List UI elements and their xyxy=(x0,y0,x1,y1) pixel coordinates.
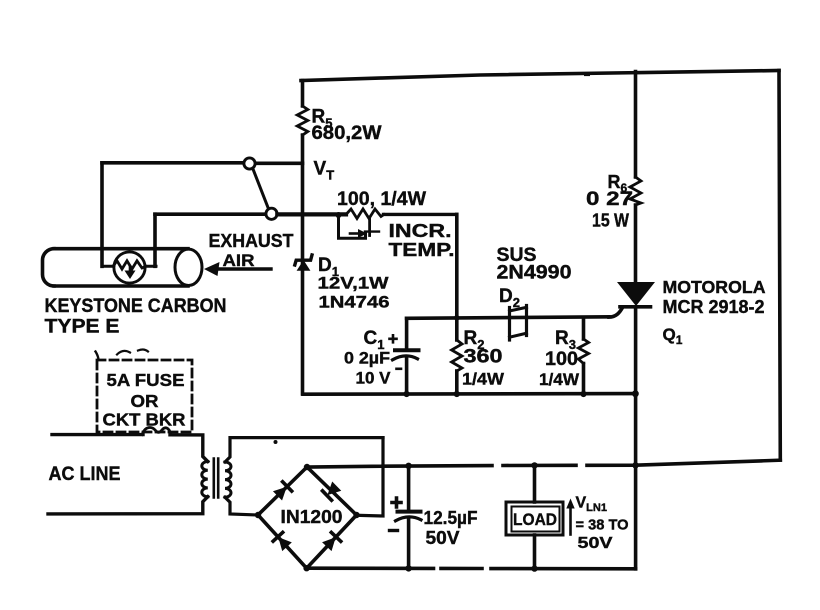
svg-text:10 V: 10 V xyxy=(356,369,392,388)
svg-text:360: 360 xyxy=(464,347,503,368)
svg-text:12.5µF: 12.5µF xyxy=(424,508,478,528)
svg-text:12V,1W: 12V,1W xyxy=(318,274,390,293)
svg-text:MCR 2918-2: MCR 2918-2 xyxy=(663,297,765,317)
svg-text:INCR.: INCR. xyxy=(389,221,452,241)
svg-text:1/4W: 1/4W xyxy=(462,370,505,389)
svg-text:D2: D2 xyxy=(499,286,520,310)
svg-text:CKT BKR: CKT BKR xyxy=(103,410,186,430)
svg-text:100, 1/4W: 100, 1/4W xyxy=(337,188,427,210)
svg-text:15 W: 15 W xyxy=(592,211,629,231)
svg-text:1N4746: 1N4746 xyxy=(319,293,390,312)
svg-text:VT: VT xyxy=(314,159,335,183)
svg-text:AIR: AIR xyxy=(223,251,255,270)
svg-text:680,2W: 680,2W xyxy=(312,122,383,144)
svg-text:Q1: Q1 xyxy=(663,325,683,347)
svg-text:VLN1: VLN1 xyxy=(576,495,607,515)
svg-text:AC LINE: AC LINE xyxy=(49,464,121,485)
svg-text:50V: 50V xyxy=(426,528,460,548)
svg-text:= 38 TO: = 38 TO xyxy=(576,517,629,534)
svg-text:MOTOROLA: MOTOROLA xyxy=(663,277,766,297)
svg-text:0 27: 0 27 xyxy=(586,189,633,210)
svg-text:TYPE E: TYPE E xyxy=(45,316,120,338)
svg-text:EXHAUST: EXHAUST xyxy=(209,230,295,251)
svg-text:100: 100 xyxy=(545,349,578,370)
svg-text:0 2µF: 0 2µF xyxy=(344,349,390,368)
svg-text:TEMP.: TEMP. xyxy=(389,240,455,260)
svg-text:LOAD: LOAD xyxy=(513,510,557,529)
svg-text:OR: OR xyxy=(131,391,159,411)
svg-text:50V: 50V xyxy=(578,535,613,552)
svg-text:IN1200: IN1200 xyxy=(281,506,343,527)
svg-text:1/4W: 1/4W xyxy=(539,370,580,389)
svg-text:2N4990: 2N4990 xyxy=(497,263,572,284)
svg-text:KEYSTONE CARBON: KEYSTONE CARBON xyxy=(45,295,227,317)
svg-text:5A FUSE: 5A FUSE xyxy=(107,370,185,390)
